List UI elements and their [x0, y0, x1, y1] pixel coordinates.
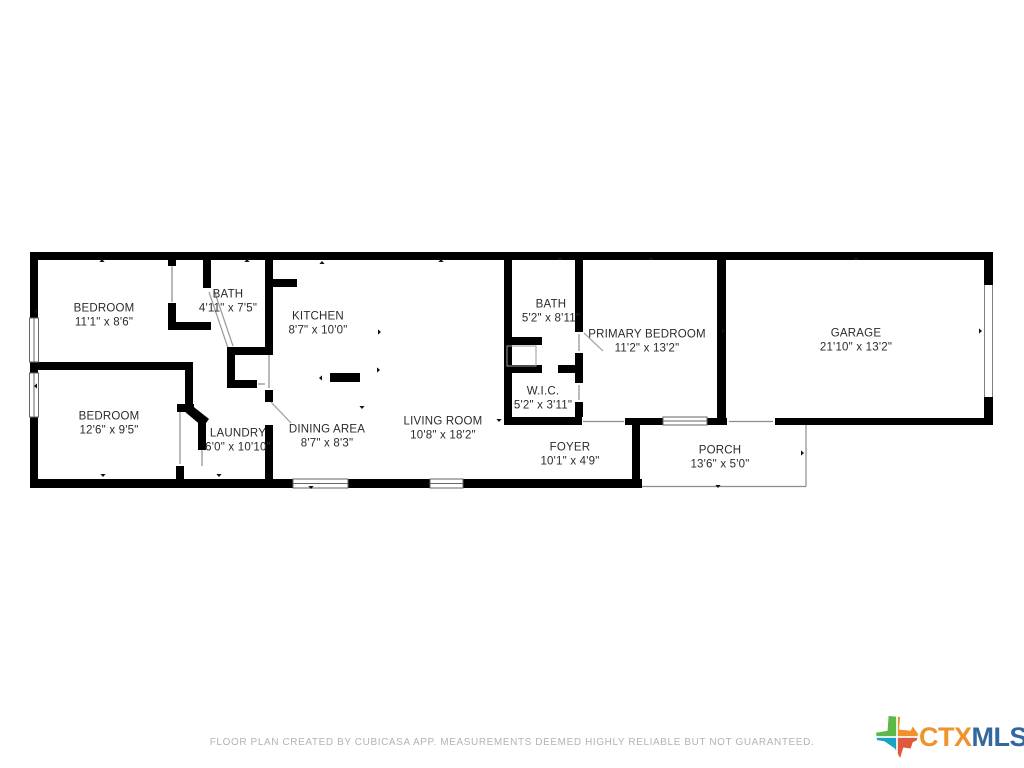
room-dimensions: 8'7" x 8'3" — [289, 437, 365, 451]
mls-text: MLS — [972, 722, 1024, 752]
room-dimensions: 5'2" x 8'11" — [522, 312, 580, 326]
wall-kitchen-left-upper — [265, 252, 273, 350]
room-name: PORCH — [690, 445, 749, 459]
ctx-text: CTX — [919, 722, 972, 752]
room-name: BATH — [199, 289, 257, 303]
room-name: BATH — [522, 299, 580, 313]
room-name: LAUNDRY — [205, 428, 271, 442]
wall-bedroom1-right-stub — [168, 252, 176, 266]
room-name: DINING AREA — [289, 424, 365, 438]
room-name: PRIMARY BEDROOM — [588, 329, 706, 343]
wall-bedroom-divider — [30, 362, 193, 370]
room-dimensions: 12'6" x 9'5" — [79, 424, 140, 438]
room-label-primary-bedroom: PRIMARY BEDROOM 11'2" x 13'2" — [588, 329, 706, 356]
room-name: BEDROOM — [74, 303, 135, 317]
room-name: KITCHEN — [288, 311, 347, 325]
room-dimensions: 8'7" x 10'0" — [288, 324, 347, 338]
room-dimensions: 11'2" x 13'2" — [588, 342, 706, 356]
room-dimensions: 4'11" x 7'5" — [199, 302, 257, 316]
wall-closet-bottom — [227, 380, 257, 388]
wall-bedroom2-stub — [176, 466, 184, 479]
wall-kitchen-stub — [273, 279, 297, 287]
room-name: GARAGE — [820, 328, 892, 342]
room-label-bath-2: BATH 5'2" x 8'11" — [522, 299, 580, 326]
wall-wic-bottom — [504, 417, 582, 425]
room-name: FOYER — [540, 442, 599, 456]
wall-closet-top — [227, 347, 273, 355]
room-label-bedroom-2: BEDROOM 12'6" x 9'5" — [79, 411, 140, 438]
wall-bath1-left — [203, 252, 211, 288]
walls — [30, 252, 993, 488]
room-label-bath-1: BATH 4'11" x 7'5" — [199, 289, 257, 316]
kitchen-counter — [330, 373, 360, 382]
room-dimensions: 5'2" x 3'11" — [514, 399, 572, 413]
room-name: LIVING ROOM — [404, 416, 483, 430]
texas-state-icon — [876, 716, 918, 758]
room-name: BEDROOM — [79, 411, 140, 425]
ctxmls-logo: CTXMLS — [876, 716, 1024, 758]
room-label-dining-area: DINING AREA 8'7" x 8'3" — [289, 424, 365, 451]
wall-garage-bottom — [775, 418, 993, 425]
room-name: W.I.C. — [514, 386, 572, 400]
room-label-foyer: FOYER 10'1" x 4'9" — [540, 442, 599, 469]
room-dimensions: 6'0" x 10'10" — [205, 441, 271, 455]
room-dimensions: 10'8" x 18'2" — [404, 429, 483, 443]
wall-bedroom2-right — [185, 362, 193, 406]
garage-door-opening — [985, 285, 993, 397]
room-dimensions: 13'6" x 5'0" — [690, 458, 749, 472]
room-label-kitchen: KITCHEN 8'7" x 10'0" — [288, 311, 347, 338]
ctxmls-wordmark: CTXMLS — [919, 717, 1024, 757]
room-label-garage: GARAGE 21'10" x 13'2" — [820, 328, 892, 355]
wall-hall — [168, 322, 211, 330]
room-label-porch: PORCH 13'6" x 5'0" — [690, 445, 749, 472]
room-label-bedroom-1: BEDROOM 11'1" x 8'6" — [74, 303, 135, 330]
footer-disclaimer: FLOOR PLAN CREATED BY CUBICASA APP. MEAS… — [0, 737, 1024, 748]
wall-bath2-right-c — [575, 402, 583, 417]
floor-plan-drawing — [0, 0, 1024, 768]
room-dimensions: 11'1" x 8'6" — [74, 316, 135, 330]
room-label-wic: W.I.C. 5'2" x 3'11" — [514, 386, 572, 413]
room-dimensions: 21'10" x 13'2" — [820, 341, 892, 355]
wall-shower — [504, 337, 542, 345]
wall-garage-divider — [717, 252, 726, 425]
floor-plan-page: BEDROOM 11'1" x 8'6" BATH 4'11" x 7'5" K… — [0, 0, 1024, 768]
room-label-laundry: LAUNDRY 6'0" x 10'10" — [205, 428, 271, 455]
room-dimensions: 10'1" x 4'9" — [540, 455, 599, 469]
wall-wic-divider-right — [558, 365, 583, 373]
wall-foyer-right — [632, 425, 640, 487]
room-label-living-room: LIVING ROOM 10'8" x 18'2" — [404, 416, 483, 443]
wall-kitchen-left-mid — [265, 390, 273, 402]
